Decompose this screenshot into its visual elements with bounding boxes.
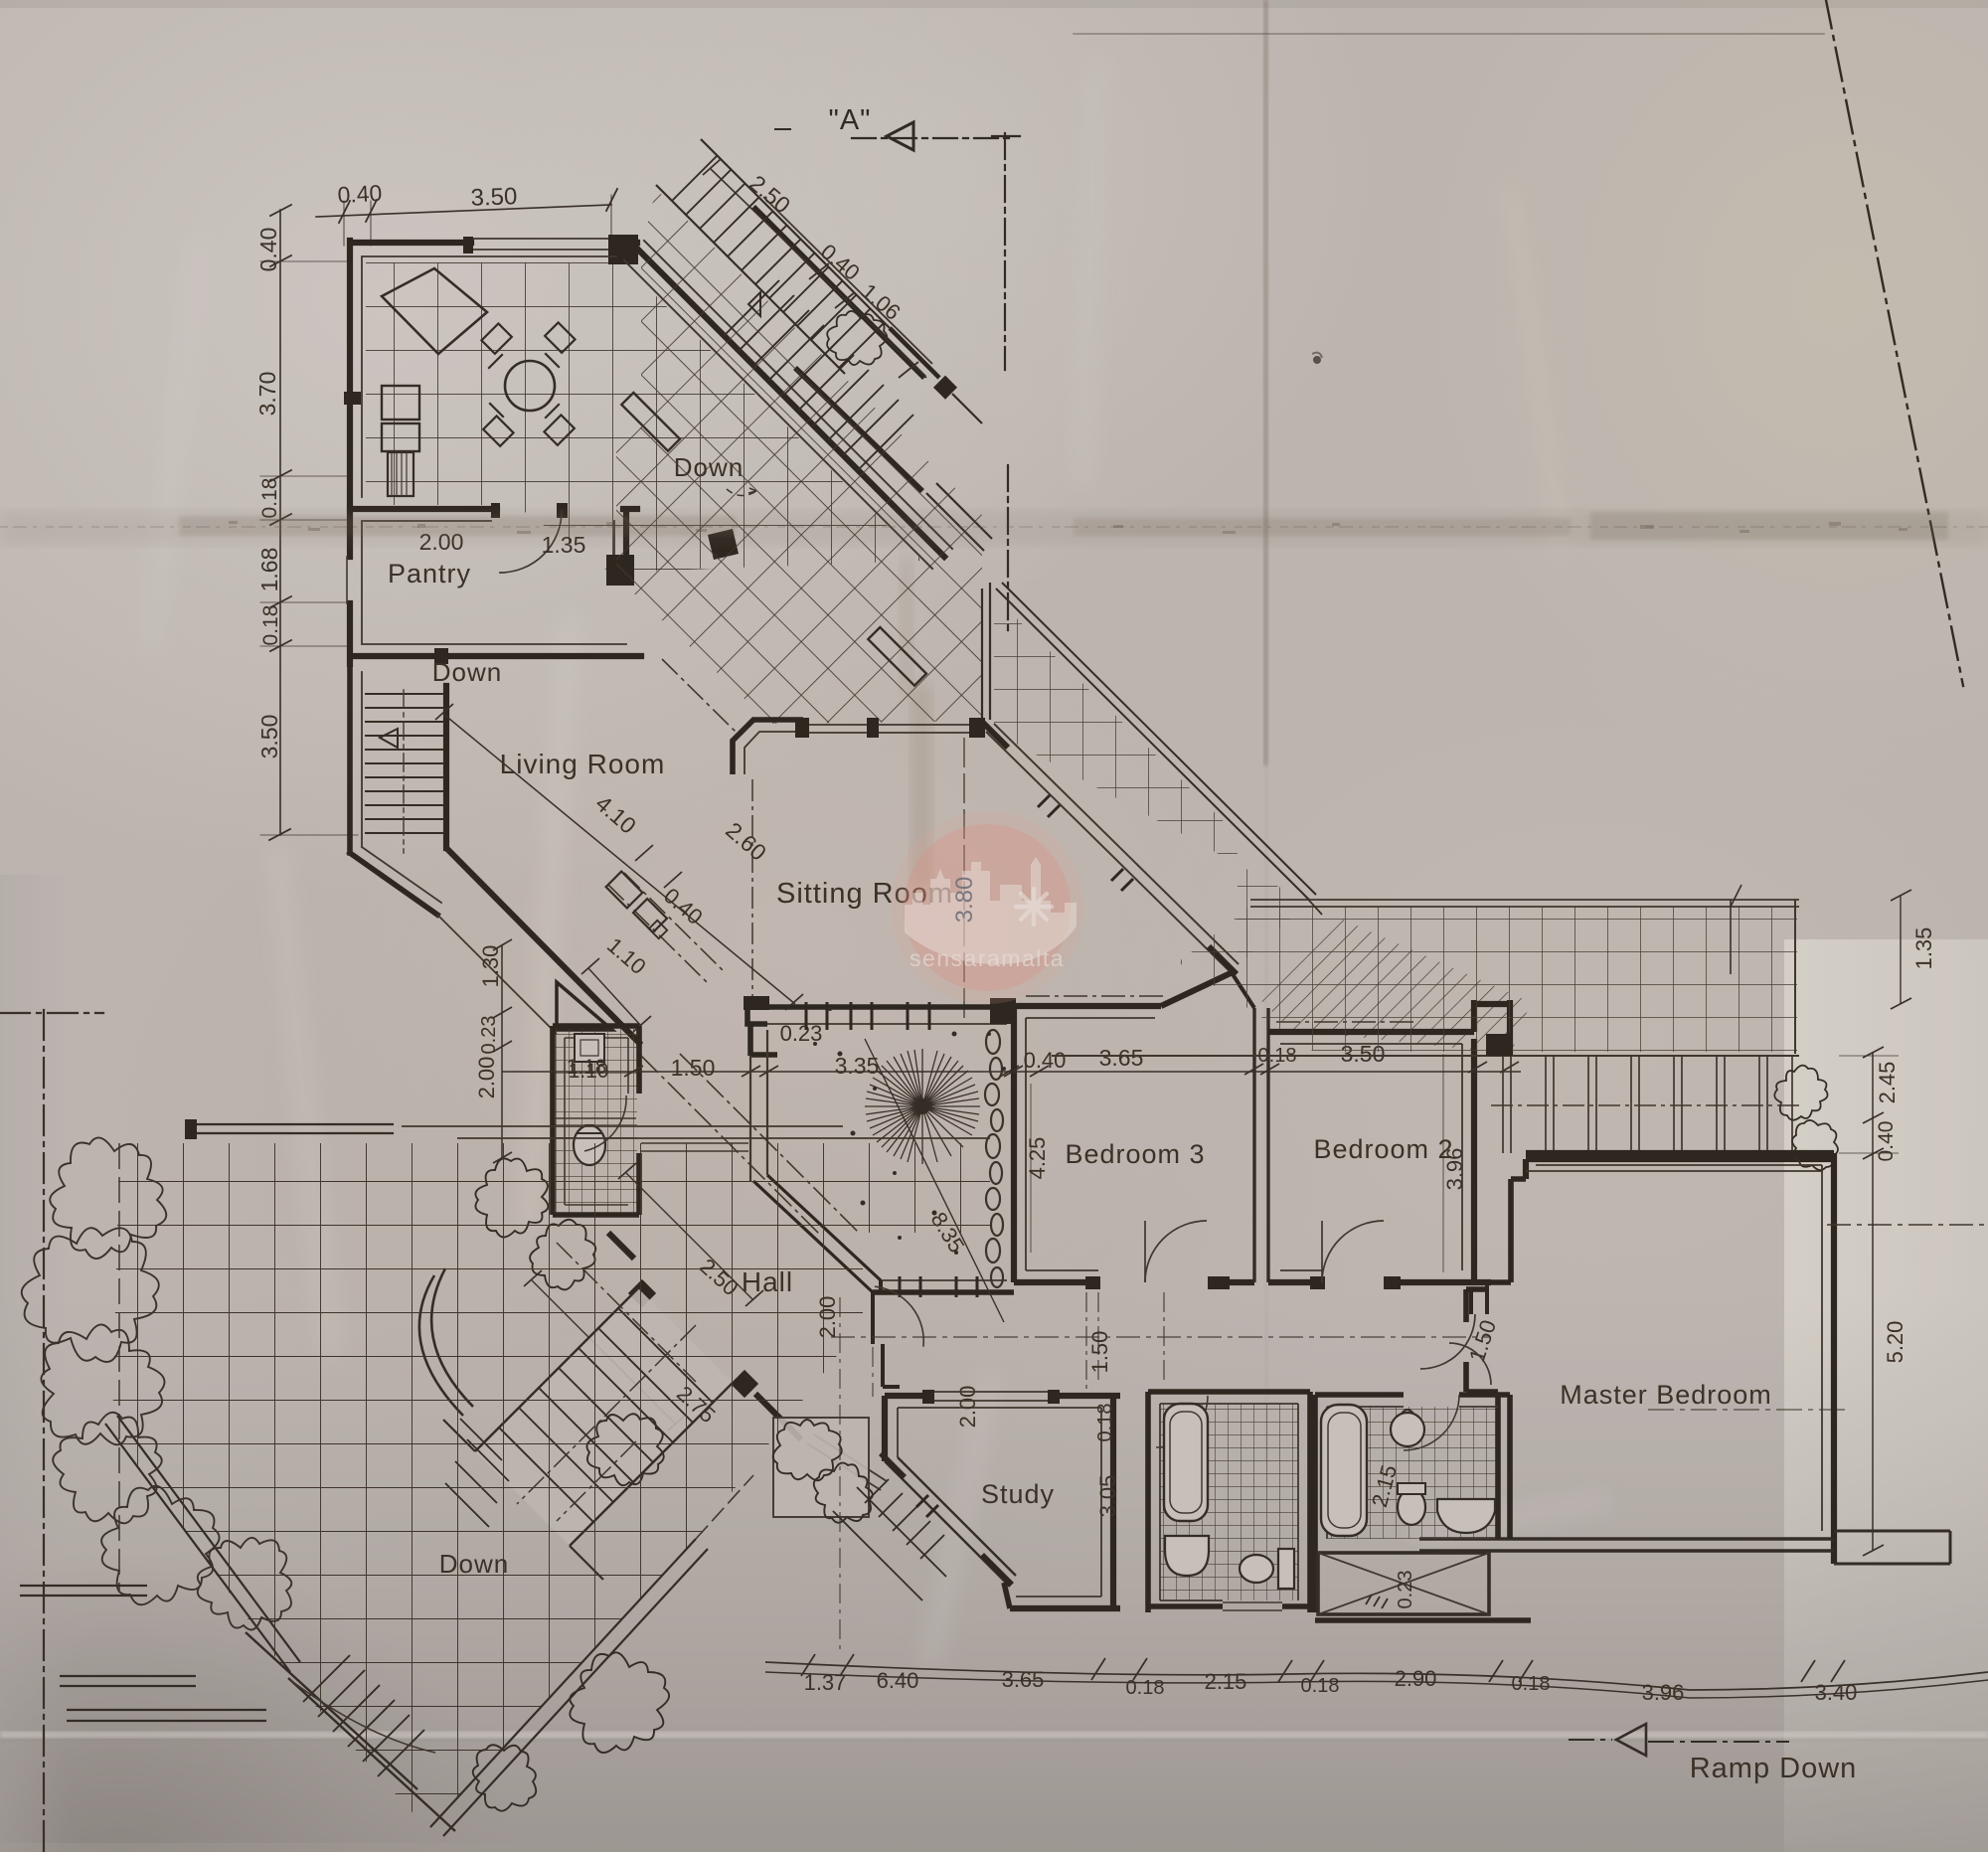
- svg-text:3.80: 3.80: [951, 877, 978, 924]
- svg-text:sensaramalta: sensaramalta: [910, 945, 1065, 971]
